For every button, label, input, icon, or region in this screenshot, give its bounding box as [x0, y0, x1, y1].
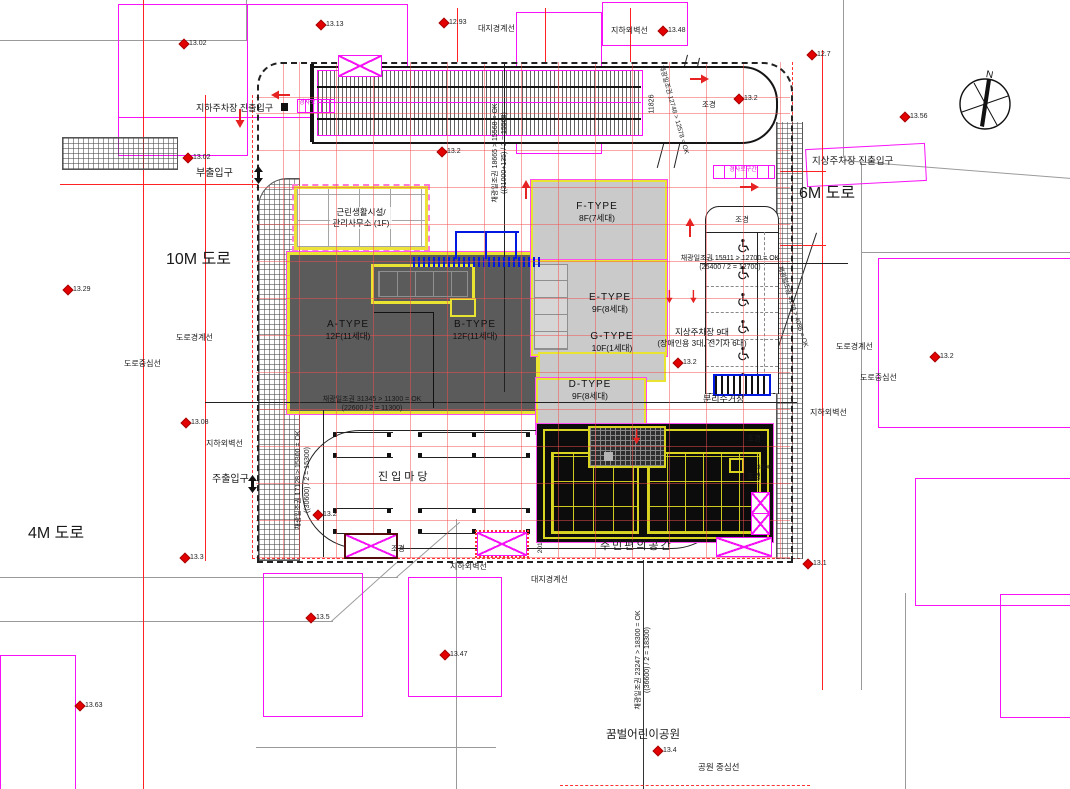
- dimension-label: 11826: [647, 95, 656, 114]
- elevation-marker-icon: [659, 26, 667, 34]
- elevation-value: 13.2: [683, 359, 697, 366]
- ground-parking-entrance-label: 지상주차장 진출입구: [812, 156, 893, 168]
- traffic-arrow-icon: [270, 84, 290, 102]
- children-park-label: 꿈벌어린이공원: [606, 728, 680, 743]
- traffic-arrow-icon: [683, 217, 701, 237]
- road-center-label-right: 도로중심선: [860, 373, 897, 383]
- traffic-arrow-icon: [740, 180, 760, 198]
- elevation-marker: 13.2: [439, 148, 461, 155]
- elevation-marker: 13.2: [675, 359, 697, 366]
- landscape-label: 조경: [747, 434, 761, 444]
- elevation-marker-icon: [184, 153, 192, 161]
- building-label-e-type: E-TYPE 9F(8세대): [560, 292, 660, 315]
- elevation-marker-icon: [181, 553, 189, 561]
- elevation-marker: 12.7: [809, 51, 831, 58]
- elevation-value: 13.2: [744, 95, 758, 102]
- elevation-value: 12.7: [817, 51, 831, 58]
- elevation-marker-icon: [180, 39, 188, 47]
- elevation-value: 13.02: [193, 154, 211, 161]
- ramp-rail: [317, 86, 641, 88]
- landscape-label: 조경: [735, 214, 749, 225]
- building-name: E-TYPE: [560, 292, 660, 303]
- road-center-line: [822, 50, 823, 690]
- neighbor-parcel-outline: [602, 2, 688, 46]
- daylight-note: 채광일조권 31345 > 11300 = OK (22600 / 2 = 11…: [323, 395, 422, 413]
- vent-box: [477, 532, 527, 556]
- elevation-marker-icon: [182, 418, 190, 426]
- community-space-label: 주민편의공간: [600, 539, 673, 553]
- building-projection: [450, 298, 476, 317]
- pergola-band: [333, 508, 393, 534]
- grid-line: [457, 8, 458, 62]
- main-entrance-label: 주출입구: [212, 473, 249, 486]
- site-boundary-label-top: 대지경계선: [478, 24, 515, 34]
- ramp-tag: 경사로: [299, 100, 316, 108]
- elevation-marker: 13.02: [181, 40, 207, 47]
- vent-box: [338, 55, 382, 77]
- north-label: N: [985, 69, 994, 81]
- daylight-note: 채광일조권 17128 > 15300 = OK ((30600) / 2 = …: [294, 430, 312, 529]
- roof-detail: [729, 458, 744, 473]
- stair-cells: [378, 271, 468, 297]
- elevation-value: 13.2: [323, 511, 337, 518]
- traffic-arrow-icon: [686, 290, 699, 304]
- entry-yard-label: 진입마당: [378, 470, 430, 484]
- building-label-d-type: D-TYPE 9F(8세대): [540, 379, 640, 402]
- sidewalk-hatch-topleft: [62, 137, 178, 170]
- building-floors: 9F(8세대): [560, 303, 660, 315]
- site-boundary-label-bottom: 대지경계선: [531, 575, 568, 585]
- elevation-value: 13.63: [85, 702, 103, 709]
- neighbor-parcel-outline: [915, 478, 1070, 606]
- elevation-value: 13.29: [73, 286, 91, 293]
- recycling-station-label: 분리수거장: [703, 394, 744, 406]
- dimension-label: 3500: [757, 464, 771, 472]
- elevation-marker-icon: [440, 18, 448, 26]
- building-name: B-TYPE: [425, 319, 525, 330]
- elevation-marker: 13.08: [183, 419, 209, 426]
- elevation-marker: 13.2: [315, 511, 337, 518]
- building-label-b-type: B-TYPE 12F(11세대): [425, 319, 525, 342]
- elevation-value: 13.2: [940, 353, 954, 360]
- elevation-marker-icon: [76, 701, 84, 709]
- elevation-marker: 13.2: [932, 353, 954, 360]
- building-label-f-type: F-TYPE 8F(7세대): [547, 201, 647, 224]
- elevation-marker: 13.48: [660, 27, 686, 34]
- elevation-value: 13.4: [663, 747, 677, 754]
- elevation-marker-icon: [674, 358, 682, 366]
- elevation-marker: 13.3: [182, 554, 204, 561]
- elevation-marker: 13.02: [185, 154, 211, 161]
- neighbor-parcel-outline: [263, 573, 363, 717]
- elevation-value: 13.56: [910, 113, 928, 120]
- traffic-arrow-icon: [690, 72, 710, 90]
- underground-wall-label-bottom: 지하외벽선: [450, 562, 487, 572]
- parcel-line: [256, 747, 496, 748]
- entrance-marker: [281, 103, 288, 111]
- road-edge-label-left: 도로경계선: [176, 333, 213, 343]
- elevation-value: 13.13: [326, 21, 344, 28]
- sub-entrance-label: 부출입구: [196, 167, 233, 180]
- site-boundary-line: [252, 558, 800, 559]
- vent-box: [751, 492, 770, 514]
- parking-stall: [706, 287, 778, 314]
- underground-parking-entrance-label: 지하주차장 진출입구: [196, 103, 273, 115]
- elevation-marker-icon: [735, 94, 743, 102]
- building-name: D-TYPE: [540, 379, 640, 390]
- underground-wall-label-right: 지하외벽선: [810, 408, 847, 418]
- ramp-tag: 경사로구간: [729, 167, 757, 175]
- elevation-value: 13.48: [668, 27, 686, 34]
- road-edge-label-right: 도로경계선: [836, 342, 873, 352]
- dimension-label: 2015: [537, 539, 545, 553]
- neighbor-parcel-outline: [878, 258, 1070, 428]
- building-floors: 8F(7세대): [547, 212, 647, 224]
- elevation-marker: 12.93: [441, 19, 467, 26]
- elevation-marker: 13.47: [442, 651, 468, 658]
- bicycle-rack: [455, 231, 519, 259]
- site-plan-canvas: 근린생활시설/ 관리사무소 (1F) 조경: [0, 0, 1070, 789]
- underground-ramp-hatch: [317, 70, 643, 136]
- traffic-arrow-icon: [519, 179, 537, 199]
- ramp-center-line: [317, 102, 641, 103]
- building-name: 근린생활시설/: [332, 207, 389, 218]
- neighbor-parcel-outline: [0, 655, 76, 789]
- grid-line: [545, 8, 546, 62]
- elevation-marker-icon: [64, 285, 72, 293]
- neighbor-parcel-outline: [408, 577, 502, 697]
- neighbor-parcel-outline: [118, 4, 248, 156]
- pergola-band: [418, 508, 530, 534]
- parking-detail-label: (장애인용 3대, 전기차 6대): [627, 338, 777, 349]
- elevation-marker-icon: [901, 112, 909, 120]
- parcel-line: [861, 163, 862, 690]
- elevation-marker: 13.13: [318, 21, 344, 28]
- underground-wall-label-left: 지하외벽선: [206, 439, 243, 449]
- elevation-value: 13.02: [189, 40, 207, 47]
- elevation-value: 13.3: [190, 554, 204, 561]
- entrance-arrow-icon: [253, 166, 264, 189]
- parcel-line: [843, 0, 844, 157]
- unit-divider-line: [374, 312, 434, 313]
- vent-box: [751, 513, 770, 535]
- elevation-marker-icon: [804, 559, 812, 567]
- road-center-label-left: 도로중심선: [124, 359, 161, 369]
- road-label-10m: 10M 도로: [166, 250, 231, 271]
- recycling-station: [713, 374, 771, 396]
- elevation-value: 12.93: [449, 19, 467, 26]
- elevation-marker-icon: [438, 147, 446, 155]
- vent-box: [716, 537, 772, 557]
- dimension-line: [323, 410, 324, 557]
- elevation-marker-icon: [441, 650, 449, 658]
- daylight-note: 채광일조권 18665 > 15568 = OK ((31000+135) / …: [491, 103, 509, 202]
- wheelchair-icon: [736, 238, 749, 253]
- daylight-note: 채광일조권 15911 > 12700 = OK (25400 / 2 = 12…: [681, 254, 780, 272]
- parking-count-label: 지상주차장 9대: [627, 326, 777, 338]
- wheelchair-icon: [736, 292, 749, 307]
- building-label-a-type: A-TYPE 12F(11세대): [298, 319, 398, 342]
- road-center-line: [205, 95, 206, 561]
- surface-parking-bay: 조경: [705, 206, 779, 394]
- elevation-value: 13.1: [813, 560, 827, 567]
- elevation-marker: 13.63: [77, 702, 103, 709]
- building-name: 관리사무소 (1F): [332, 218, 389, 229]
- neighborhood-facility-label: 근린생활시설/ 관리사무소 (1F): [330, 207, 391, 230]
- pergola-band: [333, 432, 393, 458]
- landscape-label: 조경: [747, 472, 761, 482]
- pergola-band: [418, 432, 530, 458]
- road-label-6m: 6M 도로: [799, 184, 855, 205]
- elevation-marker-icon: [307, 613, 315, 621]
- elevation-marker-icon: [654, 746, 662, 754]
- traffic-arrow-icon: [628, 429, 642, 445]
- elevation-marker: 13.1: [805, 560, 827, 567]
- building-floors: 12F(11세대): [298, 330, 398, 342]
- elevation-marker-icon: [314, 510, 322, 518]
- elevation-marker: 13.5: [308, 614, 330, 621]
- elevation-marker: 13.29: [65, 286, 91, 293]
- building-name: F-TYPE: [547, 201, 647, 212]
- road-center-line: [143, 0, 144, 789]
- elevation-marker-icon: [931, 352, 939, 360]
- elevation-marker-icon: [317, 20, 325, 28]
- elevation-marker-icon: [808, 50, 816, 58]
- traffic-arrow-icon: [662, 290, 675, 304]
- elevation-marker: 13.2: [736, 95, 758, 102]
- building-floors: 9F(8세대): [540, 390, 640, 402]
- road-label-4m: 4M 도로: [28, 524, 84, 545]
- parking-landscape-cell: 조경: [706, 207, 778, 233]
- ramp-rail: [317, 118, 641, 120]
- daylight-note: 채광일조권 23247 > 18300 = OK ((36600) / 2 = …: [634, 610, 652, 709]
- landscape-label: 조경: [702, 100, 716, 110]
- neighbor-parcel-outline: [1000, 594, 1070, 718]
- roof-detail: [604, 452, 613, 461]
- parcel-line: [905, 593, 906, 789]
- elevation-value: 13.08: [191, 419, 209, 426]
- park-boundary-line: [560, 785, 810, 786]
- park-centerline-label: 공원 중심선: [698, 762, 739, 773]
- elevation-value: 13.47: [450, 651, 468, 658]
- parcel-line: [861, 252, 1070, 253]
- building-name: A-TYPE: [298, 319, 398, 330]
- underground-wall-label-top: 지하외벽선: [611, 26, 648, 36]
- landscape-label: 조경: [391, 544, 405, 554]
- elevation-value: 13.2: [447, 148, 461, 155]
- building-floors: 12F(11세대): [425, 330, 525, 342]
- elevation-value: 13.5: [316, 614, 330, 621]
- north-compass-icon: N: [950, 66, 1020, 141]
- neighborhood-facility-building: 근린생활시설/ 관리사무소 (1F): [294, 186, 428, 250]
- vent-box: [344, 533, 398, 559]
- grid-line: [60, 184, 258, 185]
- elevation-marker: 13.56: [902, 113, 928, 120]
- elevation-marker: 13.4: [655, 747, 677, 754]
- surface-parking-label: 지상주차장 9대 (장애인용 3대, 전기차 6대): [627, 326, 777, 349]
